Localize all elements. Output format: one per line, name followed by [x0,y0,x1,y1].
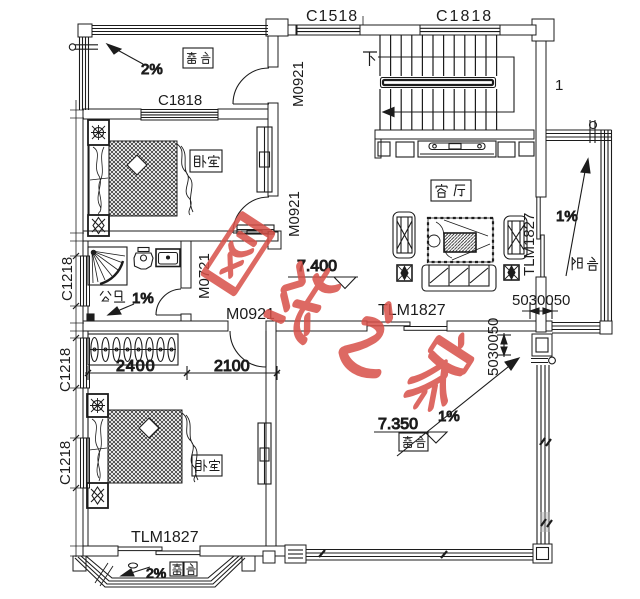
svg-text:C1818: C1818 [436,8,493,25]
svg-text:M0921: M0921 [286,191,303,237]
svg-text:1%: 1% [438,408,460,425]
svg-text:2400: 2400 [116,358,156,375]
svg-text:C1218: C1218 [59,257,76,301]
svg-text:5030050: 5030050 [512,292,570,309]
svg-text:TLM1827: TLM1827 [131,529,199,546]
svg-text:7.350: 7.350 [378,416,418,433]
svg-text:2%: 2% [146,565,166,581]
svg-text:C1518: C1518 [306,8,358,25]
svg-text:5030050: 5030050 [485,318,502,376]
svg-text:C1218: C1218 [57,348,74,392]
svg-text:C1818: C1818 [158,92,202,109]
svg-text:M0921: M0921 [290,61,307,107]
svg-text:1%: 1% [132,290,154,307]
svg-text:TLM1827: TLM1827 [521,213,538,276]
svg-text:1: 1 [555,77,563,94]
svg-text:2100: 2100 [214,358,250,375]
svg-text:1%: 1% [556,208,578,225]
svg-text:C1218: C1218 [57,441,74,485]
svg-text:2%: 2% [141,61,163,78]
